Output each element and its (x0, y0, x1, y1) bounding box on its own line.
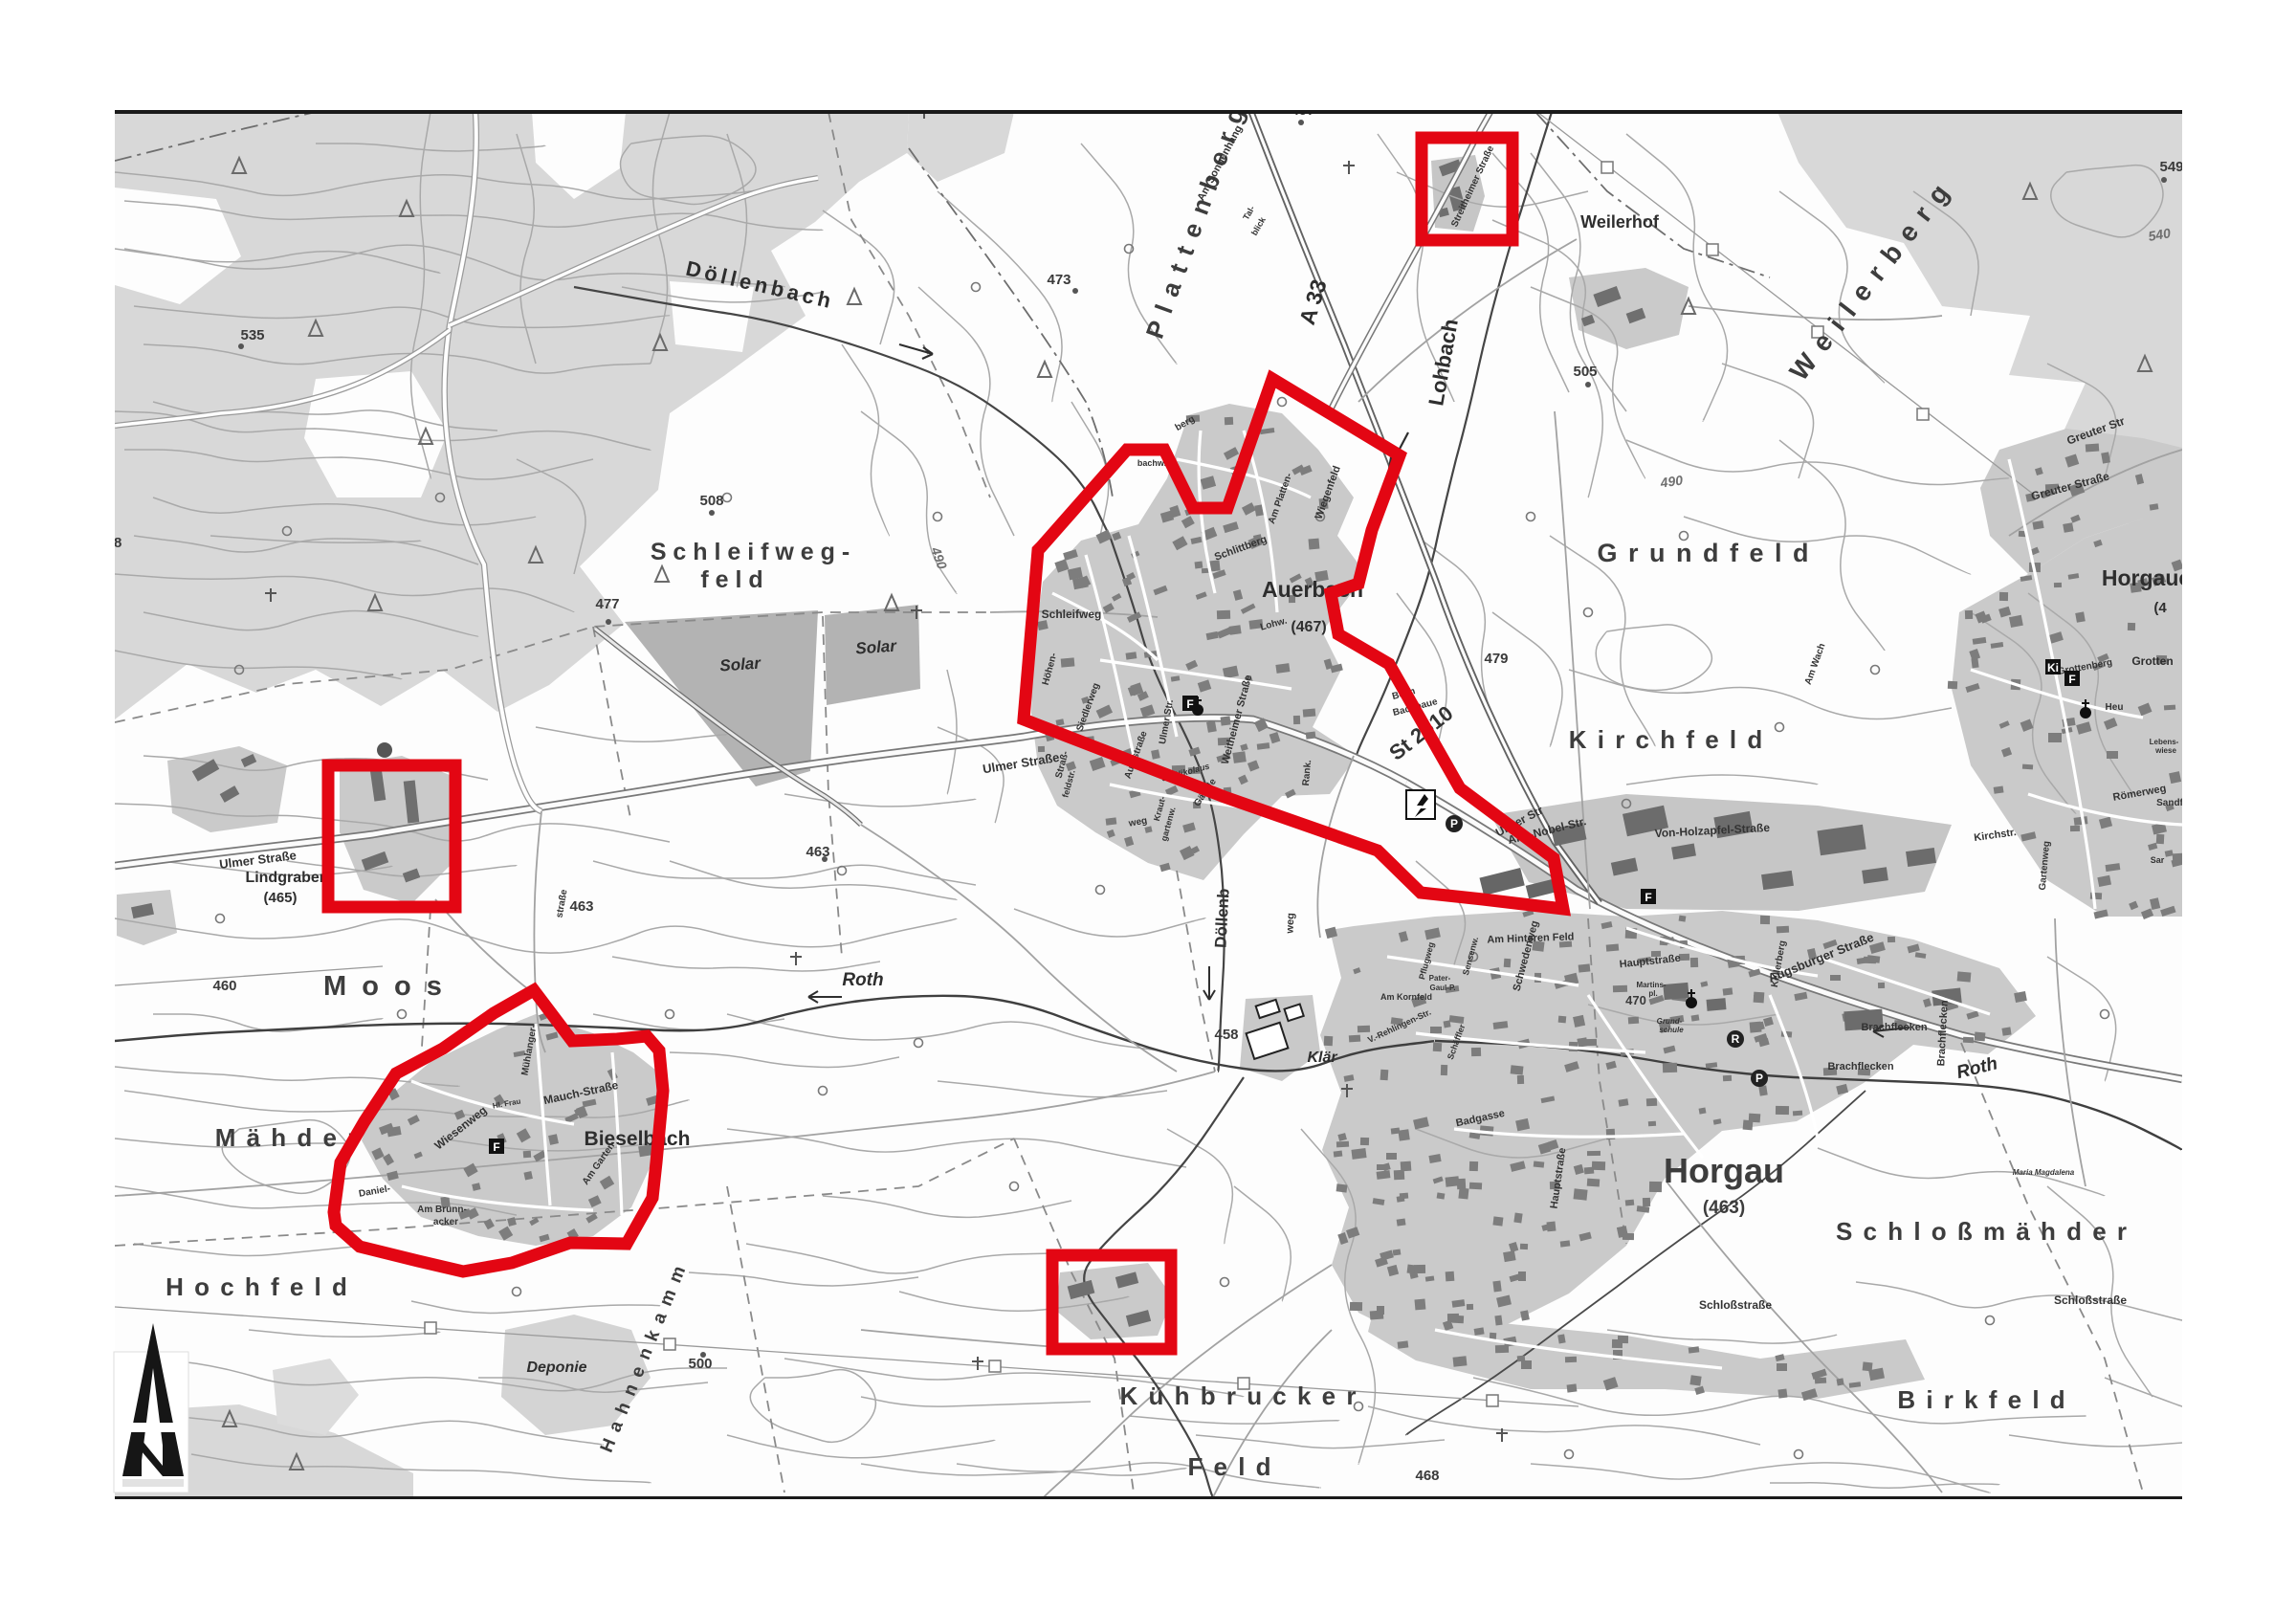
svg-text:463: 463 (569, 898, 593, 915)
svg-text:479: 479 (1484, 651, 1508, 667)
svg-text:M o o s: M o o s (323, 971, 446, 1002)
svg-text:(467): (467) (1291, 619, 1326, 635)
svg-text:Klär: Klär (1307, 1050, 1337, 1066)
svg-text:Döllenb: Döllenb (1211, 888, 1232, 948)
svg-text:470: 470 (1625, 993, 1646, 1007)
svg-text:463: 463 (806, 844, 829, 860)
svg-text:R: R (1732, 1032, 1740, 1046)
svg-text:schule: schule (1659, 1026, 1684, 1034)
svg-text:Schloßstraße: Schloßstraße (1699, 1298, 1772, 1312)
svg-text:500: 500 (688, 1356, 712, 1372)
svg-text:Deponie: Deponie (526, 1360, 586, 1376)
svg-text:pl.: pl. (1648, 989, 1657, 998)
svg-text:460: 460 (212, 978, 236, 994)
svg-text:P: P (1450, 817, 1458, 830)
svg-text:Am Brunn-: Am Brunn- (417, 1205, 467, 1215)
svg-text:Martins-: Martins- (1636, 981, 1666, 989)
svg-text:Ki: Ki (2047, 661, 2059, 674)
svg-text:wiese: wiese (2154, 746, 2176, 755)
svg-text:Lebens-: Lebens- (2150, 738, 2179, 746)
svg-text:473: 473 (1047, 272, 1071, 288)
svg-text:F e l d: F e l d (1187, 1452, 1272, 1481)
svg-text:Am Kornfeld: Am Kornfeld (1380, 992, 1432, 1002)
svg-text:G r u n d f e l d: G r u n d f e l d (1598, 539, 1811, 567)
svg-text:S c h l e i f w e g -: S c h l e i f w e g - (651, 539, 850, 565)
svg-text:f e l d: f e l d (700, 566, 762, 593)
svg-text:505: 505 (1573, 364, 1597, 380)
svg-text:Roth: Roth (842, 970, 883, 990)
svg-text:Grund-: Grund- (1657, 1017, 1683, 1026)
svg-text:Horgau: Horgau (1664, 1151, 1784, 1190)
svg-text:Gaul-P.: Gaul-P. (1430, 984, 1456, 992)
svg-text:B i r k f e l d: B i r k f e l d (1897, 1385, 2066, 1414)
svg-text:477: 477 (595, 596, 619, 612)
svg-text:Schloßstraße: Schloßstraße (2054, 1293, 2127, 1307)
svg-text:Heu: Heu (2106, 702, 2124, 713)
svg-text:F: F (493, 1140, 499, 1154)
svg-text:Brachflecken: Brachflecken (1861, 1022, 1927, 1033)
svg-text:M ä h d e r: M ä h d e r (215, 1123, 360, 1152)
svg-text:Lindgraben: Lindgraben (245, 870, 328, 886)
svg-text:P: P (1755, 1072, 1763, 1085)
svg-text:Weilerhof: Weilerhof (1580, 212, 1660, 232)
svg-text:S c h l o ß m ä h d e r: S c h l o ß m ä h d e r (1836, 1217, 2129, 1246)
svg-text:Sandf: Sandf (2156, 798, 2183, 808)
svg-text:(463): (463) (1703, 1198, 1745, 1218)
svg-text:Grotten: Grotten (2131, 654, 2173, 668)
svg-text:Bieselbach: Bieselbach (585, 1128, 691, 1150)
svg-text:Solar: Solar (719, 653, 762, 674)
svg-text:F: F (1645, 891, 1651, 904)
svg-text:bachw.: bachw. (1137, 458, 1166, 468)
svg-text:535: 535 (240, 327, 264, 343)
svg-text:468: 468 (1415, 1468, 1439, 1484)
svg-text:(465): (465) (263, 890, 297, 906)
svg-text:H o c h f e l d: H o c h f e l d (166, 1272, 349, 1301)
svg-text:K ü h b r u c k e r: K ü h b r u c k e r (1120, 1382, 1358, 1410)
svg-text:K i r c h f e l d: K i r c h f e l d (1569, 725, 1764, 754)
svg-text:Sar: Sar (2151, 855, 2165, 865)
svg-text:Maria Magdalena: Maria Magdalena (2013, 1168, 2075, 1177)
svg-text:Solar: Solar (855, 636, 898, 657)
svg-text:acker: acker (433, 1217, 458, 1227)
svg-text:F: F (2068, 673, 2075, 686)
svg-text:Brachflecken: Brachflecken (1827, 1061, 1893, 1072)
svg-text:508: 508 (699, 493, 723, 509)
svg-text:(4: (4 (2153, 600, 2167, 616)
svg-text:Pater-: Pater- (1429, 974, 1451, 983)
svg-text:458: 458 (1214, 1027, 1238, 1043)
svg-text:549: 549 (2159, 159, 2183, 175)
svg-text:490: 490 (1659, 472, 1685, 490)
svg-text:weg: weg (1284, 913, 1296, 935)
svg-text:Schleifweg: Schleifweg (1042, 608, 1102, 621)
